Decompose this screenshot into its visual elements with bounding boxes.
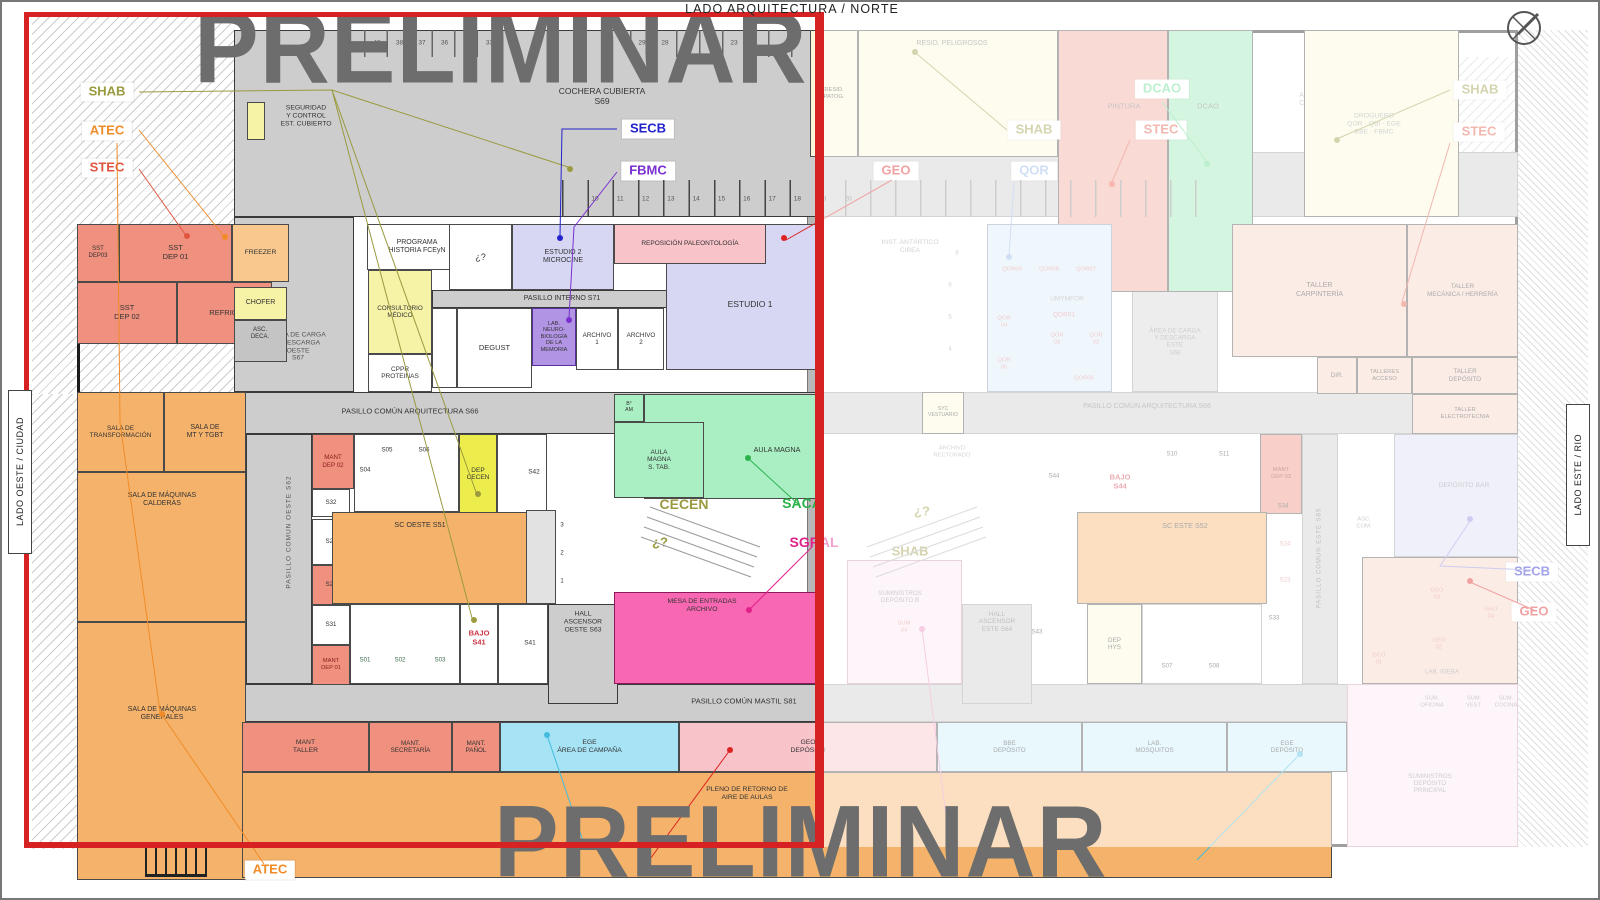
s02: S02 [394,656,405,663]
seguridad-label: SEGURIDAD Y CONTROL EST. CUBIERTO [280,104,331,127]
edge-label-north: LADO ARQUITECTURA / NORTE [642,2,942,16]
sala-calderas-label: SALA DE MÁQUINAS CALDERAS [128,492,196,508]
sst-dep02: SST DEP 02 [77,282,177,344]
s06: S06 [418,446,429,453]
corridor-oeste-label: PASILLO COMUN OESTE S62 [285,475,292,588]
dep-cecen: DEP CECEN [459,434,497,514]
edge-label-east-text: LADO ESTE / RIO [1573,434,1583,516]
lab-neurobiologia: LAB. NEURO- BIOLOGÍA DE LA MEMORIA [532,308,576,366]
corridor-s66-w-label: PASILLO COMÚN ARQUITECTURA S66 [342,408,479,417]
estudio-1-label: ESTUDIO 1 [728,300,773,310]
aula-magna-label: AULA MAGNA [754,446,801,454]
s01: S01 [359,656,370,663]
mant-secretaria: MANT. SECRETARÍA [369,722,452,772]
s41-label: S41 [524,639,536,646]
east-wing-fade-overlay [820,30,1588,847]
stair-sliver [432,308,457,388]
ege-campana: EGE ÁREA DE CAMPAÑA [500,722,679,772]
s42-label: S42 [528,468,540,475]
cecen-label: CECEN [659,496,708,512]
seguridad-room [247,102,265,140]
asc-deca-label: ASC. DECA. [251,327,269,341]
degust: DEGUST [457,308,532,388]
room-unknown-w: ¿? [449,224,512,290]
red-frame-right [815,12,824,848]
s05: S05 [381,446,392,453]
north-arrow-icon [1498,8,1546,56]
callout-secb: SECB [622,120,674,139]
archivo-1: ARCHIVO 1 [576,308,618,370]
people-figures [145,848,207,877]
hall-oeste-label: HALL ASCENSOR OESTE S63 [564,610,602,633]
freezer: FREEZER [232,224,289,282]
sala-mt-tgbt: SALA DE MT Y TGBT [164,392,246,472]
corridor-oeste [246,434,312,684]
s-rooms-block [350,604,460,684]
elevators-w [526,510,556,604]
red-frame-bottom [24,842,820,848]
mant-dep02: MANT DEP 02 [312,434,354,489]
b-am: B° AM [614,394,644,422]
sst-dep03: SST DEP03 [77,224,119,282]
reposicion-paleontologia: REPOSICIÓN PALEONTOLOGÍA [614,224,766,264]
lift-3: 3 [560,523,563,530]
parking-ticks-row2 [562,180,818,217]
cppr-proteinas: CPPR PROTEINAS [368,354,432,392]
sst-dep01: SST DEP 01 [119,224,232,282]
sc-oeste-label: SC OESTE S51 [394,521,445,529]
mant-taller: MANT TALLER [242,722,369,772]
archivo-2: ARCHIVO 2 [618,308,664,370]
mesa-entradas-label: MESA DE ENTRADAS ARCHIVO [667,598,736,614]
callout-fbmc: FBMC [621,162,675,181]
estudio-2: ESTUDIO 2 MICROCINE [512,224,614,290]
callout-stec-nw: STEC [82,159,133,178]
s03: S03 [434,656,445,663]
consultorio-medico: CONSULTORIO MÉDICO [368,270,432,354]
s04: S04 [359,466,370,473]
callout-atec-s: ATEC [245,861,295,880]
sala-transformacion: SALA DE TRANSFORMACIÓN [77,392,164,472]
corridor-mastil-label: PASILLO COMÚN MASTIL S81 [691,698,796,707]
sala-generales-label: SALA DE MÁQUINAS GENERALES [128,706,196,722]
edge-label-west: LADO OESTE / CIUDAD [8,390,32,554]
edge-label-west-text: LADO OESTE / CIUDAD [15,417,25,526]
s31: S31 [312,605,350,645]
callout-shab-nw: SHAB [81,83,134,102]
callout-atec: ATEC [82,122,132,141]
lift-1: 1 [560,579,563,586]
bajo-s41-label: BAJO S41 [469,629,490,646]
lift-2: 2 [560,551,563,558]
mant-panol: MANT. PAÑOL [452,722,500,772]
floor-plan-page: COCHERA CUBIERTA S69PASILLO COMÚN ARQUIT… [0,0,1600,900]
s41-stairs [498,604,548,684]
aula-magna-stab: AULA MAGNA S. TAB. [614,422,704,498]
mant-dep01: MANT DEP 01 [312,645,350,685]
chofer: CHOFER [234,287,287,320]
unknown-w-label: ¿? [652,536,668,551]
edge-label-east: LADO ESTE / RIO [1566,404,1590,546]
pasillo-interno-label: PASILLO INTERNO S71 [524,295,601,303]
